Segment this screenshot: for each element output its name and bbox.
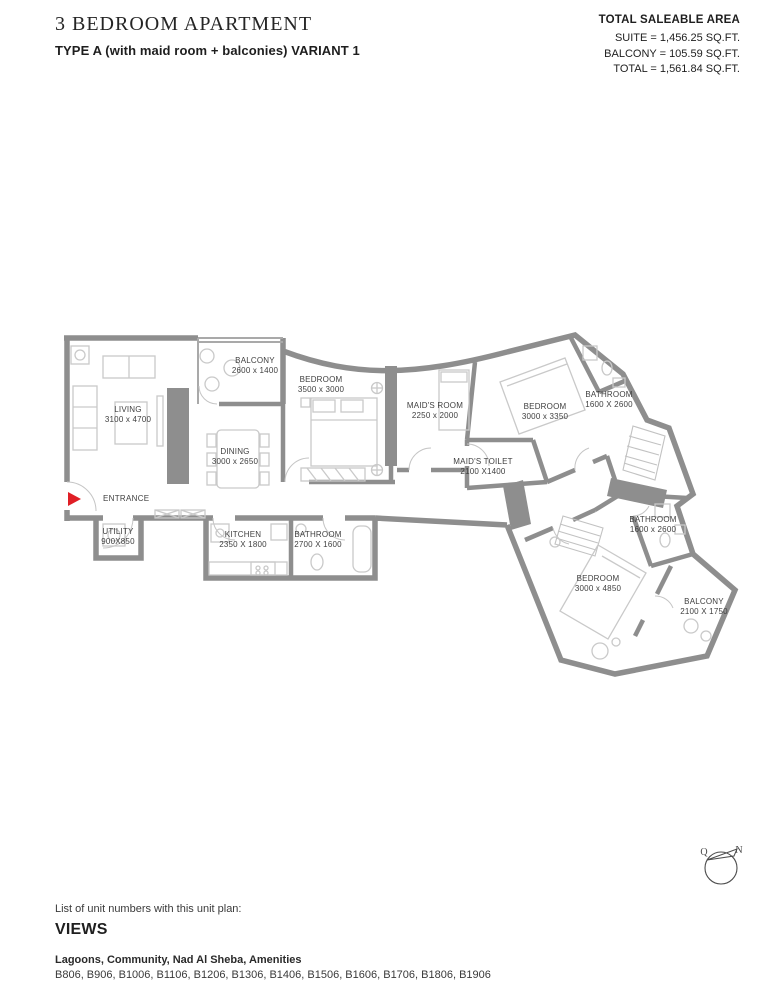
unit-list-heading: List of unit numbers with this unit plan…	[55, 903, 241, 915]
room-label: MAID'S ROOM	[407, 401, 463, 410]
room-label: BEDROOM	[524, 402, 567, 411]
wall-pillar	[385, 366, 397, 466]
room-dimensions: 2600 x 1400	[232, 366, 279, 375]
room-dimensions: 3000 x 2650	[212, 457, 259, 466]
views-list: Lagoons, Community, Nad Al Sheba, Amenit…	[55, 954, 302, 966]
exterior-walls-layer	[64, 335, 735, 674]
room-label: BALCONY	[684, 597, 724, 606]
room-dimensions: 900X850	[101, 537, 135, 546]
area-summary: TOTAL SALEABLE AREA SUITE = 1,456.25 SQ.…	[599, 14, 740, 78]
room-dimensions: 2250 x 2000	[412, 411, 459, 420]
room-dimensions: 2100 X 1750	[680, 607, 728, 616]
wall-pillar	[167, 388, 189, 484]
views-heading: VIEWS	[55, 921, 108, 939]
room-dimensions: 3100 x 4700	[105, 415, 152, 424]
page-title: 3 BEDROOM APARTMENT	[55, 13, 360, 36]
area-suite: SUITE = 1,456.25 SQ.FT.	[599, 31, 740, 47]
entrance-label: ENTRANCE	[103, 494, 149, 503]
header-left: 3 BEDROOM APARTMENT TYPE A (with maid ro…	[55, 13, 360, 58]
room-label: MAID'S TOILET	[453, 457, 512, 466]
room-label: BATHROOM	[585, 390, 632, 399]
compass-icon: Q N	[688, 836, 752, 894]
room-dimensions: 1600 X 2600	[585, 400, 633, 409]
room-label: BEDROOM	[577, 574, 620, 583]
room-dimensions: 3000 x 3350	[522, 412, 569, 421]
entrance-arrow-icon	[68, 492, 81, 506]
compass-label-q: Q	[700, 847, 708, 858]
floor-plan: ENTRANCE LIVING3100 x 4700BALCONY2600 x …	[55, 330, 745, 682]
compass-label-n: N	[735, 845, 742, 856]
brochure-page: { "header": { "title": "3 BEDROOM APARTM…	[0, 0, 783, 1000]
room-dimensions: 2100 X1400	[460, 467, 506, 476]
area-balcony: BALCONY = 105.59 SQ.FT.	[599, 47, 740, 63]
room-dimensions: 2350 X 1800	[219, 540, 267, 549]
room-label: BATHROOM	[294, 530, 341, 539]
area-summary-heading: TOTAL SALEABLE AREA	[599, 14, 740, 26]
room-label: DINING	[220, 447, 249, 456]
room-label: BALCONY	[235, 356, 275, 365]
room-label: BEDROOM	[300, 375, 343, 384]
room-label: BATHROOM	[629, 515, 676, 524]
room-label: UTILITY	[102, 527, 134, 536]
room-label: KITCHEN	[225, 530, 262, 539]
compass-ring	[705, 852, 737, 884]
room-dimensions: 3000 x 4850	[575, 584, 622, 593]
room-dimensions: 3500 x 3000	[298, 385, 345, 394]
room-label: LIVING	[114, 405, 141, 414]
unit-numbers: B806, B906, B1006, B1106, B1206, B1306, …	[55, 969, 491, 981]
page-subtitle: TYPE A (with maid room + balconies) VARI…	[55, 43, 360, 58]
area-total: TOTAL = 1,561.84 SQ.FT.	[599, 62, 740, 78]
room-dimensions: 2700 X 1600	[294, 540, 342, 549]
wall-mass	[503, 480, 531, 530]
room-dimensions: 1600 x 2600	[630, 525, 677, 534]
